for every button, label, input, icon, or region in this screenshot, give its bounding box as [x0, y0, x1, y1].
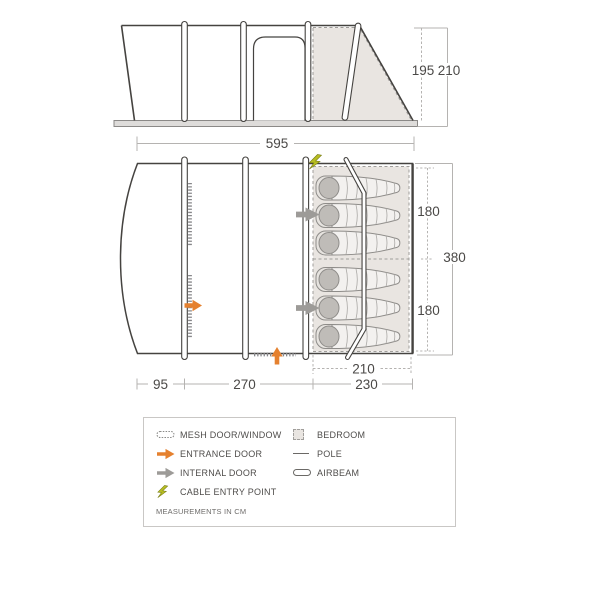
- airbeam: [182, 22, 188, 122]
- legend-label: BEDROOM: [317, 430, 365, 440]
- cable-entry-point-icon: [156, 485, 180, 499]
- legend-item-cable-entry-point: CABLE ENTRY POINT: [156, 482, 282, 501]
- legend-box: MESH DOOR/WINDOW ENTRANCE DOOR INTERNAL …: [143, 417, 456, 527]
- diagram-canvas: 195 210 595: [0, 0, 600, 410]
- airbeam: [303, 157, 309, 360]
- elevation-door: [254, 37, 306, 121]
- legend-item-entrance-door: ENTRANCE DOOR: [156, 444, 282, 463]
- airbeam: [305, 22, 311, 122]
- legend-item-internal-door: INTERNAL DOOR: [156, 463, 282, 482]
- legend-item-airbeam: AIRBEAM: [293, 463, 365, 482]
- pole-icon: [293, 453, 317, 454]
- bedroom-icon: [293, 429, 317, 440]
- entrance-door-icon: [156, 448, 180, 460]
- tent-floorplan-diagram: 195 210 595: [0, 0, 600, 600]
- airbeam: [182, 157, 188, 360]
- legend-label: AIRBEAM: [317, 468, 359, 478]
- legend-item-bedroom: BEDROOM: [293, 425, 365, 444]
- legend-label: ENTRANCE DOOR: [180, 449, 262, 459]
- dim-depth-total: 380: [443, 250, 466, 265]
- legend-label: CABLE ENTRY POINT: [180, 487, 276, 497]
- airbeam-icon: [293, 469, 317, 476]
- measurements-note: MEASUREMENTS IN CM: [156, 507, 246, 516]
- airbeam: [243, 157, 249, 360]
- legend-item-mesh-door-window: MESH DOOR/WINDOW: [156, 425, 282, 444]
- legend-column-left: MESH DOOR/WINDOW ENTRANCE DOOR INTERNAL …: [156, 425, 282, 501]
- legend-column-right: BEDROOM POLE AIRBEAM: [293, 425, 365, 482]
- dim-living-width: 270: [233, 377, 256, 392]
- dim-bedroom-inner-width: 210: [352, 362, 375, 377]
- mesh-door-window-icon: [156, 430, 180, 439]
- legend-item-pole: POLE: [293, 444, 365, 463]
- dim-bedroom-depth-upper: 180: [417, 204, 440, 219]
- dim-porch-width: 95: [153, 377, 168, 392]
- legend-label: MESH DOOR/WINDOW: [180, 430, 282, 440]
- elevation-ground: [114, 121, 418, 127]
- elevation-bedroom-area: [313, 28, 412, 121]
- elevation-view: 195 210 595: [114, 22, 462, 152]
- dim-bedroom-section-width: 230: [355, 377, 378, 392]
- dim-height-peak: 210: [438, 63, 461, 78]
- internal-door-icon: [156, 467, 180, 479]
- dim-height-inner: 195: [412, 63, 435, 78]
- legend-label: INTERNAL DOOR: [180, 468, 257, 478]
- legend-label: POLE: [317, 449, 342, 459]
- airbeam: [241, 22, 247, 122]
- dim-total-width: 595: [266, 136, 289, 151]
- dim-bedroom-depth-lower: 180: [417, 303, 440, 318]
- plan-view: 180 180 380 210 95 270 230: [121, 155, 470, 393]
